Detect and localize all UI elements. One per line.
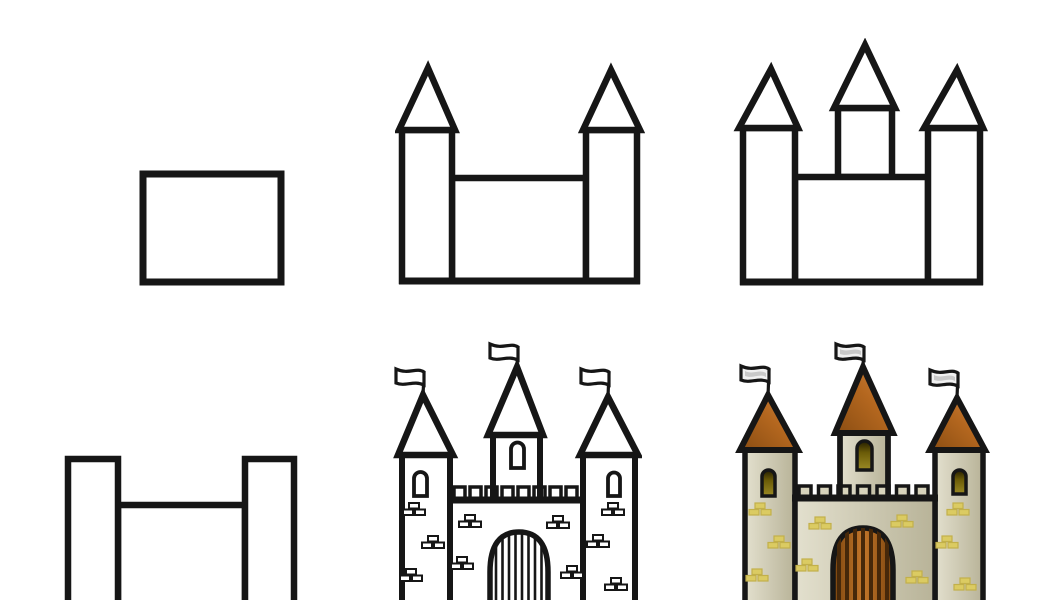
castle-wall: [795, 177, 928, 282]
roof-cone-left: [399, 68, 455, 130]
window-middle: [511, 443, 524, 469]
roof-cone-left: [398, 395, 453, 455]
tower-right: [586, 130, 637, 281]
window-right: [953, 470, 966, 494]
tower-right: [928, 128, 980, 282]
step3-drawing: [399, 68, 640, 281]
flag-icon-right: [581, 369, 609, 385]
step6-drawing: [740, 344, 985, 600]
tower-left: [402, 130, 452, 281]
castle-drawing-tutorial: [0, 0, 1050, 600]
roof-cone-middle: [488, 367, 543, 435]
window-right: [608, 473, 620, 497]
roof-cone-left: [740, 395, 798, 450]
step-panel-three-towers-roofs: [733, 38, 989, 288]
step-panel-colored-castle: [735, 340, 990, 600]
flag-icon-middle: [490, 344, 518, 360]
tower-middle: [838, 108, 892, 177]
roof-cone-middle: [834, 45, 895, 108]
door: [490, 532, 548, 600]
roof-cone-right: [583, 70, 640, 130]
step4-drawing: [739, 45, 983, 282]
tower-left: [68, 459, 118, 600]
step1-drawing: [143, 174, 281, 282]
step-panel-two-towers: [60, 450, 305, 600]
flag-icon-left: [741, 366, 769, 382]
roof-cone-right: [930, 398, 985, 450]
step-panel-base-rectangle: [136, 167, 288, 289]
window-left: [762, 470, 775, 496]
step5-drawing: [396, 344, 638, 600]
window-middle: [857, 441, 872, 470]
window-left: [414, 472, 427, 496]
castle-base-rectangle: [143, 174, 281, 282]
castle-wall: [452, 178, 586, 281]
flag-icon-left: [396, 369, 424, 385]
tower-left: [743, 128, 795, 282]
roof-cone-right: [580, 397, 638, 455]
tower-right: [245, 459, 294, 600]
flag-icon-middle: [836, 344, 864, 360]
roof-cone-right: [924, 70, 983, 128]
roof-cone-middle: [835, 367, 893, 433]
roof-cone-left: [739, 69, 798, 128]
door-planks: [839, 526, 887, 600]
step2-drawing: [68, 459, 294, 600]
step-panel-detailed-outline: [390, 340, 642, 600]
step-panel-two-towers-roofs: [395, 60, 645, 288]
flag-icon-right: [930, 370, 958, 386]
castle-wall: [118, 505, 245, 600]
